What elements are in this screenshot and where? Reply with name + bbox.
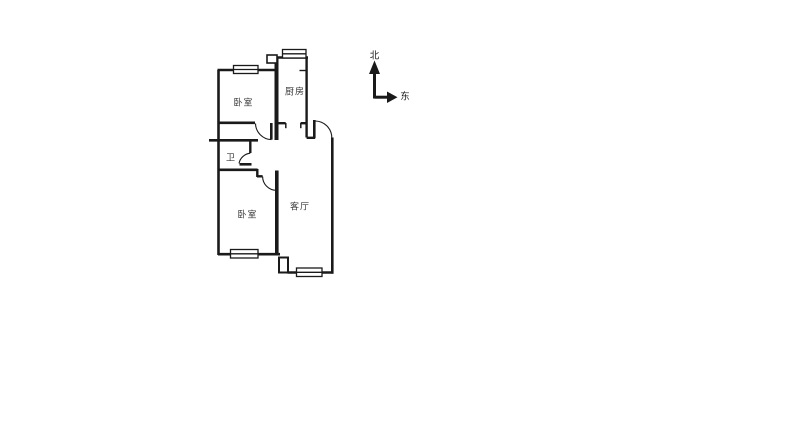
compass-north-label: 北 [370,51,380,61]
duct-box-living [279,258,288,273]
window-living-room [297,268,323,277]
door-arc-bedroom-bottom [263,177,277,191]
room-label-bedroom-top: 卧室 [233,100,253,109]
door-arc-bedroom-top [256,124,272,140]
window-bedroom-top [234,66,259,74]
door-arc-entry [315,121,332,138]
room-label-bathroom: 卫 [226,154,236,163]
floor-plan-drawing [0,0,800,424]
door-arc-bathroom [239,153,250,163]
window-bedroom-bottom [231,250,259,259]
flue-box-kitchen [267,55,277,63]
compass-east-label: 东 [400,92,410,102]
room-label-kitchen: 厨房 [285,88,305,97]
room-label-bedroom-bottom: 卧室 [237,211,257,220]
floor-plan-canvas: 卧室 厨房 卫 卧室 客厅 北 东 [0,0,800,424]
room-label-living-room: 客厅 [290,203,310,212]
window-kitchen [283,50,307,59]
compass-east-arrowhead [387,92,398,104]
compass-north-arrowhead [369,61,380,75]
